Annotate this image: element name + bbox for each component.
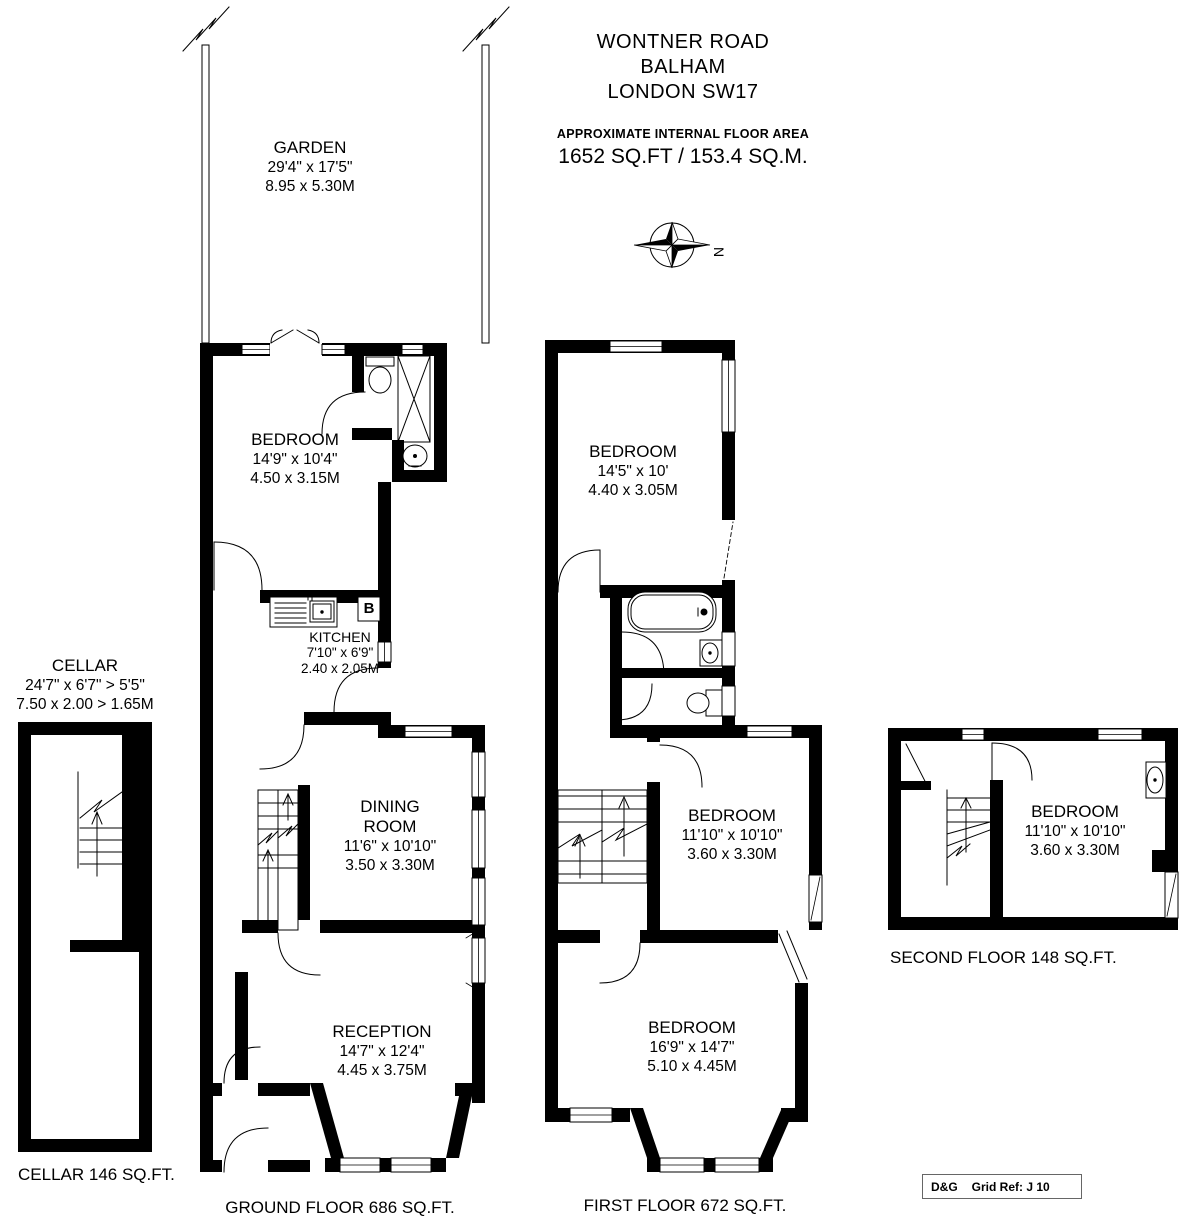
bathroom-sink [1146,762,1166,798]
garden-metric: 8.95 x 5.30M [265,177,355,196]
first-bedroom-middle-label: BEDROOM 11'10" x 10'10" 3.60 x 3.30M [681,806,782,864]
room-metric: 5.10 x 4.45M [647,1057,737,1076]
second-floor-doors [992,743,1032,780]
garden-imperial: 29'4" x 17'5" [265,158,355,177]
room-imperial: 16'9" x 14'7" [647,1038,737,1057]
room-metric: 3.60 x 3.30M [1024,841,1125,860]
first-bedroom-front-label: BEDROOM 16'9" x 14'7" 5.10 x 4.45M [647,1018,737,1076]
second-bedroom-label: BEDROOM 11'10" x 10'10" 3.60 x 3.30M [1024,802,1125,860]
room-imperial: 14'7" x 12'4" [332,1042,431,1061]
garden-label: GARDEN 29'4" x 17'5" 8.95 x 5.30M [265,138,355,196]
floorplan-page: N [0,0,1200,1232]
ground-bedroom-label: BEDROOM 14'9" x 10'4" 4.50 x 3.15M [250,430,340,488]
first-bedroom-rear-label: BEDROOM 14'5" x 10' 4.40 x 3.05M [588,442,678,500]
room-imperial: 7'10" x 6'9" [301,645,379,661]
room-metric: 2.40 x 2.05M [301,661,379,677]
cellar-floor-label: CELLAR 146 SQ.FT. [18,1165,175,1185]
room-metric: 4.50 x 3.15M [250,469,340,488]
room-name: KITCHEN [301,629,379,645]
bathtub [628,592,716,632]
kitchen-label: KITCHEN 7'10" x 6'9" 2.40 x 2.05M [301,629,379,677]
first-floor-label: FIRST FLOOR 672 SQ.FT. [584,1196,787,1216]
cellar-label: CELLAR 24'7" x 6'7" > 5'5" 7.50 x 2.00 >… [16,656,153,714]
address-line-1: WONTNER ROAD [597,30,770,55]
floorplan-drawing: N [0,0,1200,1232]
first-floor-staircase [558,790,647,883]
address-line-3: LONDON SW17 [597,80,770,105]
address-line-2: BALHAM [597,55,770,80]
second-floor-staircase [947,790,990,885]
property-address: WONTNER ROAD BALHAM LONDON SW17 [597,30,770,105]
room-imperial: 14'5" x 10' [588,462,678,481]
room-name: BEDROOM [250,430,340,450]
room-imperial: 11'10" x 10'10" [1024,822,1125,841]
bathroom-sink [403,445,427,467]
room-imperial: 14'9" x 10'4" [250,450,340,469]
room-name: BEDROOM [647,1018,737,1038]
room-metric: 3.50 x 3.30M [344,856,436,875]
ground-floor-staircase [258,790,298,930]
cellar-imperial: 24'7" x 6'7" > 5'5" [16,676,153,695]
garden-name: GARDEN [265,138,355,158]
room-metric: 3.60 x 3.30M [681,845,782,864]
toilet [366,357,394,393]
ground-floor-label: GROUND FLOOR 686 SQ.FT. [225,1198,455,1218]
room-name: BEDROOM [588,442,678,462]
reception-label: RECEPTION 14'7" x 12'4" 4.45 x 3.75M [332,1022,431,1080]
boiler-label: B [364,600,375,617]
grid-ref-box: D&G Grid Ref: J 10 [922,1174,1082,1199]
room-imperial: 11'6" x 10'10" [344,837,436,856]
room-name: BEDROOM [681,806,782,826]
dining-room-label: DINING ROOM 11'6" x 10'10" 3.50 x 3.30M [344,797,436,875]
compass-icon: N [634,222,727,268]
room-metric: 4.45 x 3.75M [332,1061,431,1080]
room-metric: 4.40 x 3.05M [588,481,678,500]
second-floor-label: SECOND FLOOR 148 SQ.FT. [890,948,1117,968]
room-name: DINING ROOM [348,797,432,837]
cellar-name: CELLAR [16,656,153,676]
cellar-plan [18,722,152,1152]
room-name: RECEPTION [332,1022,431,1042]
compass-north-letter: N [711,247,727,257]
room-name: BEDROOM [1024,802,1125,822]
grid-ref-label: Grid Ref: J 10 [972,1180,1050,1194]
brand-label: D&G [931,1180,958,1194]
floor-area-caption: APPROXIMATE INTERNAL FLOOR AREA [557,127,809,141]
room-imperial: 11'10" x 10'10" [681,826,782,845]
shower [398,356,430,442]
floor-area-value: 1652 SQ.FT / 153.4 SQ.M. [558,145,807,169]
toilet [687,690,722,716]
cellar-metric: 7.50 x 2.00 > 1.65M [16,695,153,714]
bathroom-sink [700,640,722,666]
